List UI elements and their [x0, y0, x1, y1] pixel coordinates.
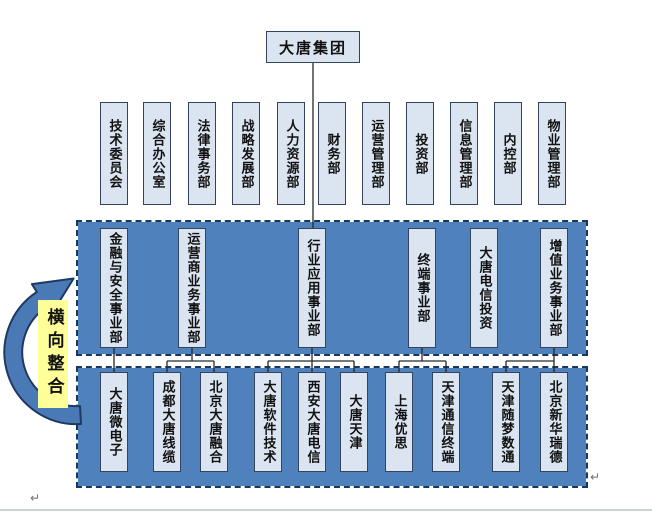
division-box: 行业应用事业部	[298, 228, 326, 348]
integration-arrow-label-text: 横向整合	[45, 308, 62, 400]
subsidiary-label: 上海优思	[393, 394, 406, 450]
division-box: 大唐电信投资	[470, 228, 498, 348]
department-label: 人力资源部	[285, 119, 298, 189]
department-label: 战略发展部	[240, 119, 253, 189]
department-label: 物业管理部	[546, 119, 559, 189]
division-label: 终端事业部	[416, 253, 429, 323]
department-label: 内控部	[502, 133, 515, 175]
department-label: 信息管理部	[458, 119, 471, 189]
subsidiary-box: 北京新华瑞德	[540, 372, 568, 472]
subsidiary-label: 天津随梦数通	[500, 380, 513, 464]
subsidiary-label: 大唐软件技术	[262, 380, 275, 464]
subsidiary-label: 北京新华瑞德	[548, 380, 561, 464]
department-box: 信息管理部	[450, 102, 478, 205]
subsidiary-box: 天津随梦数通	[492, 372, 520, 472]
department-box: 物业管理部	[538, 102, 566, 205]
department-label: 综合办公室	[151, 119, 164, 189]
division-label: 大唐电信投资	[478, 246, 491, 330]
department-box: 战略发展部	[232, 102, 260, 205]
root-box-label: 大唐集团	[279, 37, 347, 58]
subsidiary-label: 成都大唐线缆	[161, 380, 174, 464]
subsidiary-label: 天津通信终端	[440, 380, 453, 464]
department-box: 人力资源部	[277, 102, 305, 205]
division-label: 金融与安全事业部	[108, 232, 121, 344]
department-box: 法律事务部	[188, 102, 216, 205]
root-box: 大唐集团	[266, 31, 360, 63]
subsidiary-box: 西安大唐电信	[298, 372, 326, 472]
subsidiary-label: 大唐微电子	[108, 387, 121, 457]
department-label: 财务部	[326, 133, 339, 175]
page-divider-line	[0, 509, 652, 511]
division-box: 增值业务事业部	[540, 228, 568, 348]
subsidiary-box: 北京大唐融合	[200, 372, 228, 472]
subsidiary-box: 成都大唐线缆	[153, 372, 181, 472]
department-label: 投资部	[414, 133, 427, 175]
department-box: 综合办公室	[143, 102, 171, 205]
paragraph-mark: ↵	[590, 471, 600, 483]
division-label: 增值业务事业部	[548, 239, 561, 337]
department-box: 运营管理部	[362, 102, 390, 205]
subsidiary-label: 北京大唐融合	[208, 380, 221, 464]
division-box: 运营商业务事业部	[178, 228, 206, 348]
department-label: 法律事务部	[196, 119, 209, 189]
subsidiary-box: 大唐微电子	[100, 372, 128, 472]
department-label: 运营管理部	[370, 119, 383, 189]
division-label: 行业应用事业部	[306, 239, 319, 337]
subsidiary-box: 大唐天津	[340, 372, 368, 472]
paragraph-mark: ↵	[30, 492, 40, 504]
integration-arrow-label: 横向整合	[38, 300, 68, 408]
subsidiary-label: 西安大唐电信	[306, 380, 319, 464]
department-box: 技术委员会	[100, 102, 128, 205]
divisions-panel	[76, 220, 588, 356]
division-box: 金融与安全事业部	[100, 228, 128, 348]
subsidiary-label: 大唐天津	[348, 394, 361, 450]
division-box: 终端事业部	[408, 228, 436, 348]
subsidiary-box: 大唐软件技术	[254, 372, 282, 472]
subsidiary-box: 上海优思	[385, 372, 413, 472]
department-box: 内控部	[494, 102, 522, 205]
org-chart: 横向整合 大唐集团 技术委员会 综合办公室 法律事务部 战略发展部 人力资源部	[0, 0, 652, 518]
department-label: 技术委员会	[108, 119, 121, 189]
department-box: 财务部	[318, 102, 346, 205]
division-label: 运营商业务事业部	[186, 232, 199, 344]
department-box: 投资部	[406, 102, 434, 205]
subsidiary-box: 天津通信终端	[432, 372, 460, 472]
